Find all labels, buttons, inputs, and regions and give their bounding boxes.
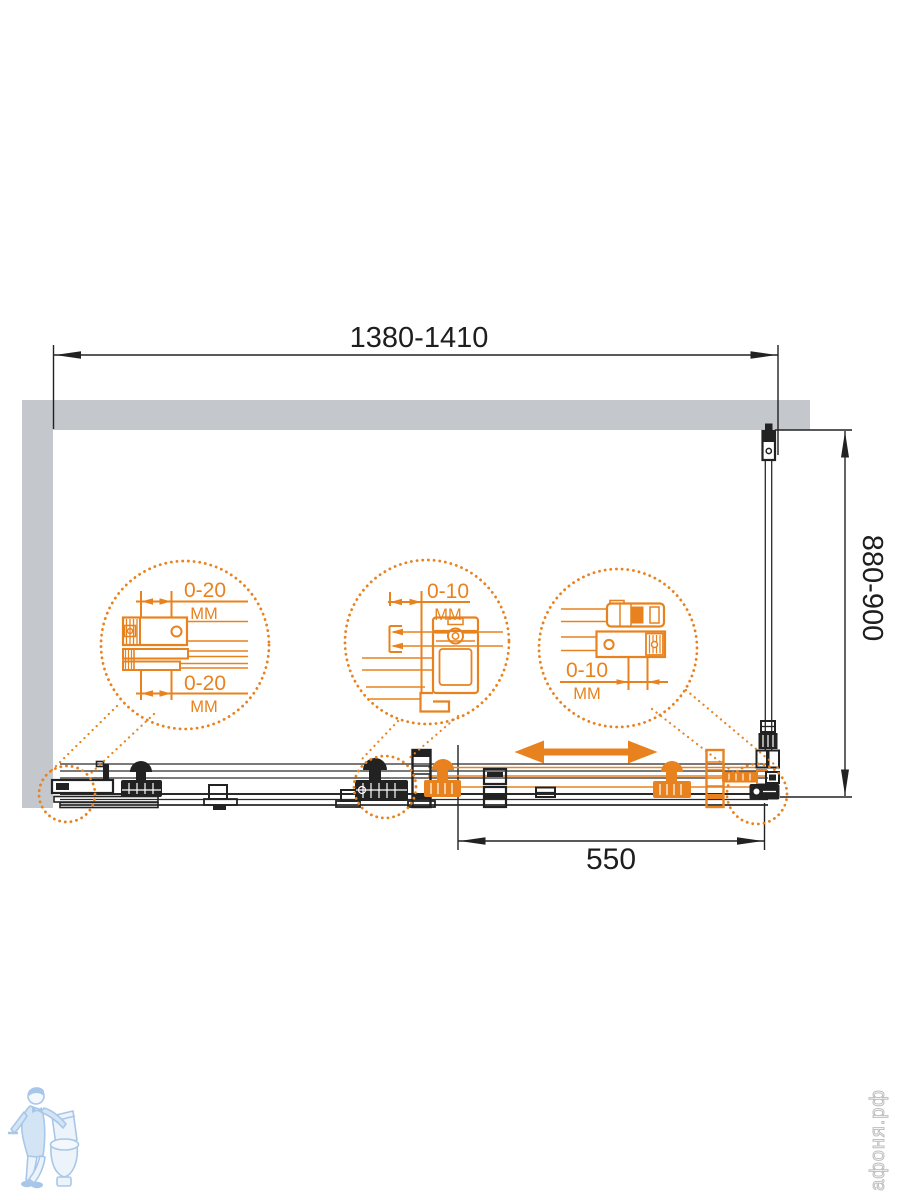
- height-dimension-label: 880-900: [856, 535, 888, 641]
- callout3-unit: ММ: [573, 685, 601, 703]
- slide-direction-arrow: [515, 741, 658, 764]
- side-glass-panel: [765, 460, 771, 750]
- corner-connector-assembly: [750, 721, 780, 800]
- door-width-dimension-label: 550: [586, 843, 636, 876]
- callout1-top-unit: ММ: [190, 605, 218, 623]
- track-clamp-left: [204, 785, 237, 810]
- drawing-canvas: 1380-1410 880-900 550: [0, 0, 900, 1200]
- corner-bar-orange: [722, 770, 766, 784]
- callout-door-roller-detail: [362, 591, 503, 712]
- callout2-value: 0-10: [427, 580, 469, 603]
- wall-top: [22, 400, 810, 430]
- callout1-bottom-value: 0-20: [184, 672, 226, 695]
- width-dimension-label: 1380-1410: [350, 322, 489, 354]
- callout1-bottom-unit: ММ: [190, 698, 218, 716]
- roller-carriage-left: [121, 761, 162, 797]
- mascot-watermark: [8, 1087, 79, 1188]
- track-clip: [536, 788, 555, 798]
- callout3-value: 0-10: [566, 659, 608, 682]
- roller-carriage-orange-right: [653, 761, 691, 798]
- callout1-top-value: 0-20: [184, 579, 226, 602]
- shower-enclosure-technical-drawing: 1380-1410 880-900 550: [0, 0, 900, 1200]
- callout2-unit: ММ: [434, 606, 462, 624]
- brand-watermark: афоня.рф: [867, 1089, 889, 1191]
- height-dimension: [775, 430, 852, 797]
- wall-left: [22, 400, 53, 808]
- door-handle-profile: [484, 769, 506, 807]
